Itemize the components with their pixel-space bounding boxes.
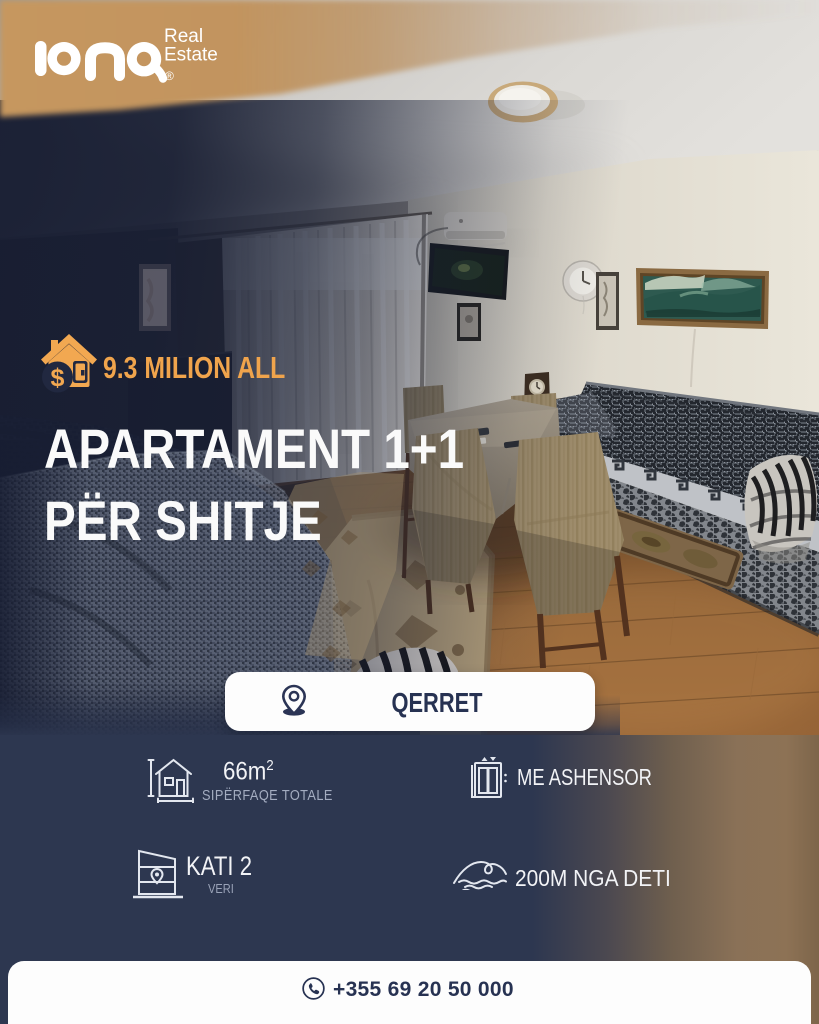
- svg-text:®: ®: [165, 69, 174, 83]
- svg-text:Estate: Estate: [164, 45, 218, 66]
- svg-text:$: $: [51, 364, 65, 392]
